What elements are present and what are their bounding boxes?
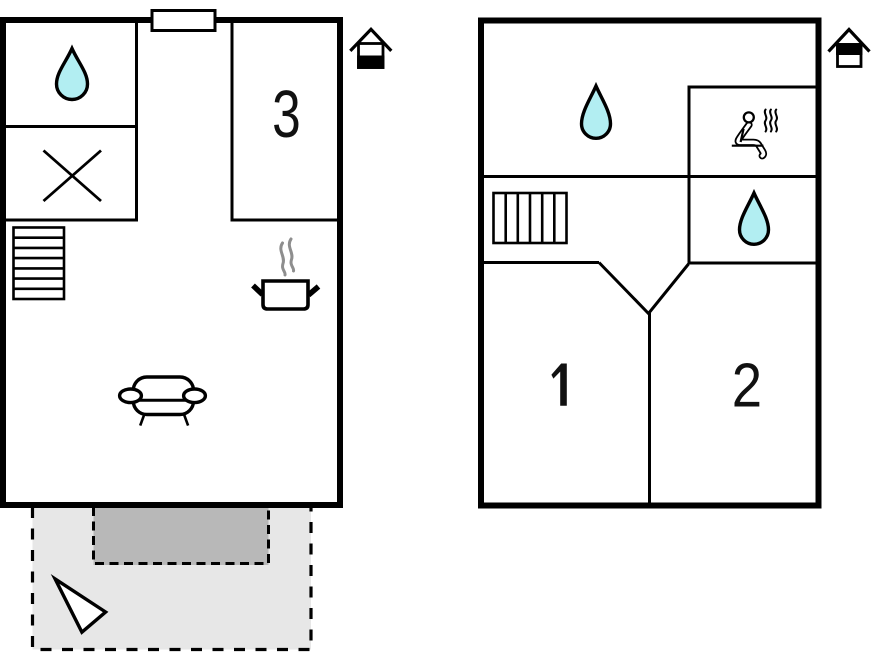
svg-text:3: 3: [272, 77, 301, 152]
svg-text:2: 2: [732, 351, 762, 420]
